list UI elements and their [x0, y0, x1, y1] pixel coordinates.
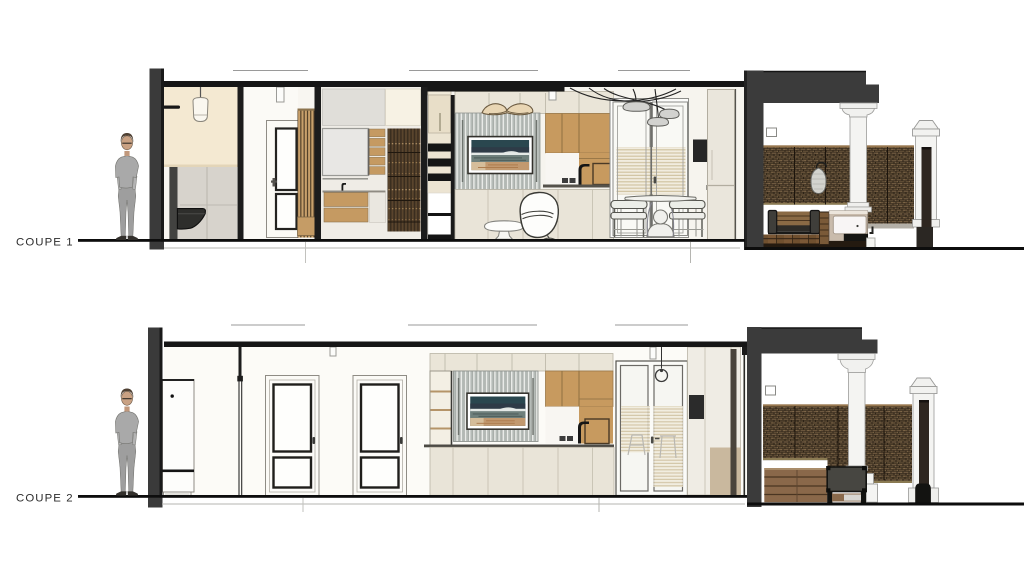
svg-text:COUPE 1: COUPE 1: [16, 237, 74, 249]
svg-text:COUPE 2: COUPE 2: [16, 493, 74, 505]
